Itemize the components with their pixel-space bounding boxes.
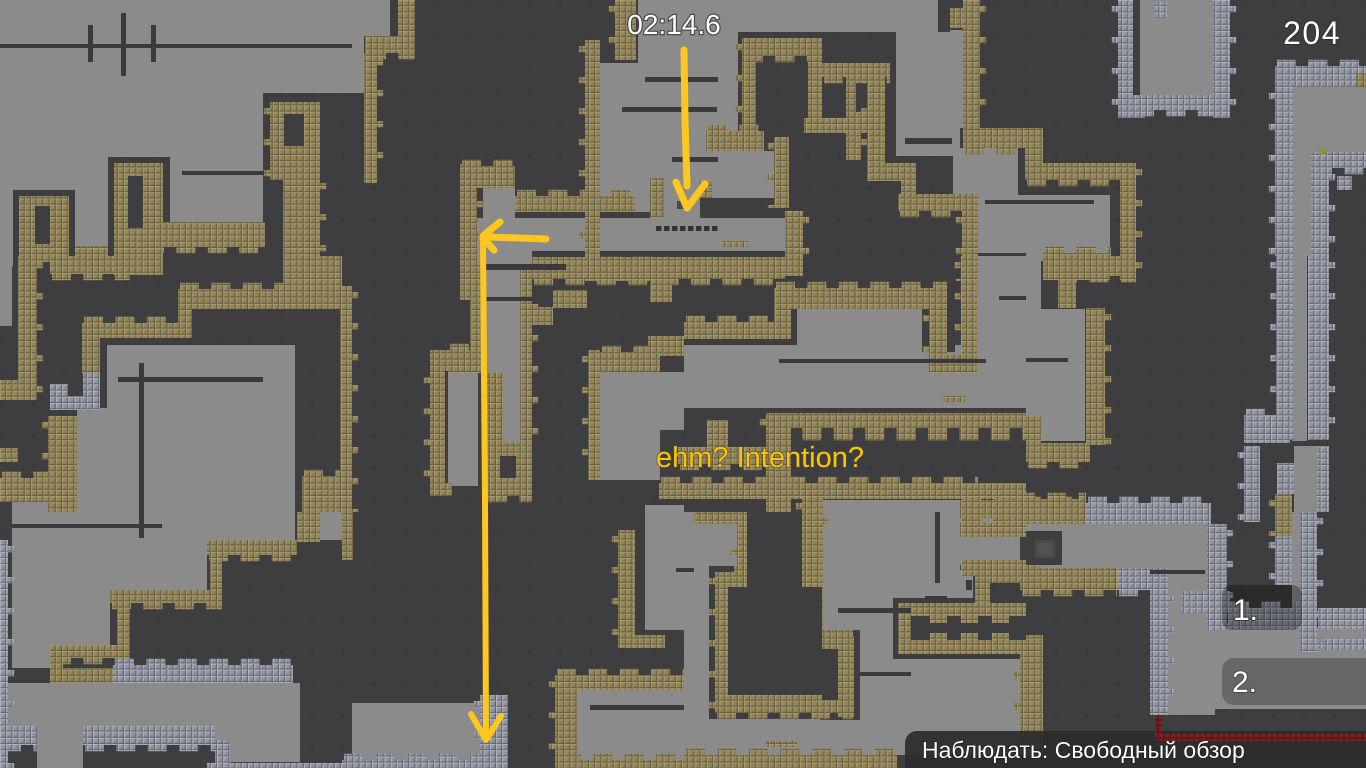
svg-text:02:14.6: 02:14.6 [627, 9, 720, 40]
svg-text:1.: 1. [1233, 594, 1258, 627]
svg-text:204: 204 [1283, 15, 1341, 51]
svg-text:ehm? Intention?: ehm? Intention? [656, 442, 864, 474]
svg-text:2.: 2. [1232, 666, 1257, 699]
